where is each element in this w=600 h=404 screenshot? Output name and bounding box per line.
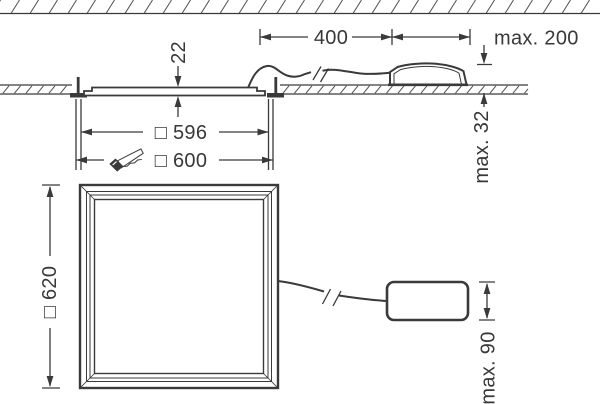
hatch-lines xyxy=(283,86,528,93)
driver-box-section xyxy=(388,63,468,85)
dimension-cable-run: 400 max. 200 xyxy=(260,27,579,50)
dim-600-label: □ 600 xyxy=(155,150,208,172)
t-rail-right-flange xyxy=(267,93,284,98)
dimension-arrowhead xyxy=(392,34,403,41)
dim-22-label: 22 xyxy=(168,41,190,64)
panel-cross-section xyxy=(84,88,265,96)
dimension-arrowhead xyxy=(262,157,273,164)
dimension-arrowhead xyxy=(484,283,491,294)
panel-corner-miters xyxy=(81,186,277,387)
cable-break-marks-top xyxy=(313,67,329,83)
structure-hatch-lines xyxy=(0,0,600,14)
dim-max200-label: max. 200 xyxy=(494,28,579,50)
tile-left-hatch xyxy=(3,86,67,93)
dimension-panel-and-cutout: □ 596 □ 600 xyxy=(76,99,273,174)
dimension-panel-outer: □ 620 xyxy=(39,185,61,388)
ceiling-structure-hatching xyxy=(0,0,600,14)
dimension-arrowhead xyxy=(381,34,392,41)
driver-box-front-view xyxy=(387,282,468,320)
tile-right-hatch xyxy=(283,86,528,93)
panel-outer-edge xyxy=(80,185,278,388)
dimension-arrowhead xyxy=(258,129,269,136)
dimension-arrowhead xyxy=(47,186,54,197)
drawing-canvas: 22 400 max. 200 max. 32 □ 596 □ 600 xyxy=(0,0,600,404)
dimension-arrowhead xyxy=(81,129,92,136)
dimension-driver-height: max. 32 xyxy=(471,45,493,184)
driver-box-outline xyxy=(387,282,468,320)
panel-bezel-line-1 xyxy=(87,192,272,382)
dimension-driver-length: max. 90 xyxy=(478,282,500,404)
cable-front-view xyxy=(278,281,387,306)
cable-front-line xyxy=(278,281,387,301)
panel-inner-edge xyxy=(95,200,264,374)
t-rail-left-stem xyxy=(77,77,80,95)
dimension-arrowhead xyxy=(175,96,182,107)
panel-section-outline xyxy=(84,88,265,96)
handsaw-icon xyxy=(108,146,145,173)
dimension-arrowhead xyxy=(47,376,54,387)
dim-400-label: 400 xyxy=(314,27,348,49)
dimension-arrowhead xyxy=(175,76,182,87)
dimension-arrowhead xyxy=(484,308,491,319)
panel-front-view xyxy=(80,185,278,388)
dim-max90-label: max. 90 xyxy=(478,331,500,404)
dimension-arrowhead xyxy=(260,34,271,41)
dimension-arrowhead xyxy=(481,53,488,64)
dim-max32-label: max. 32 xyxy=(471,110,493,183)
cable-break-marks-bottom xyxy=(323,289,342,306)
dim-620-label: □ 620 xyxy=(39,266,61,319)
dim-596-label: □ 596 xyxy=(155,122,208,144)
hatch-lines xyxy=(0,0,600,14)
t-rail-right-stem xyxy=(274,77,277,95)
panel-bezel-line-2 xyxy=(90,195,268,378)
dimension-arrowhead xyxy=(459,34,470,41)
luminaire-dimension-drawing: 22 400 max. 200 max. 32 □ 596 □ 600 xyxy=(0,0,600,404)
hatch-lines xyxy=(3,86,67,93)
